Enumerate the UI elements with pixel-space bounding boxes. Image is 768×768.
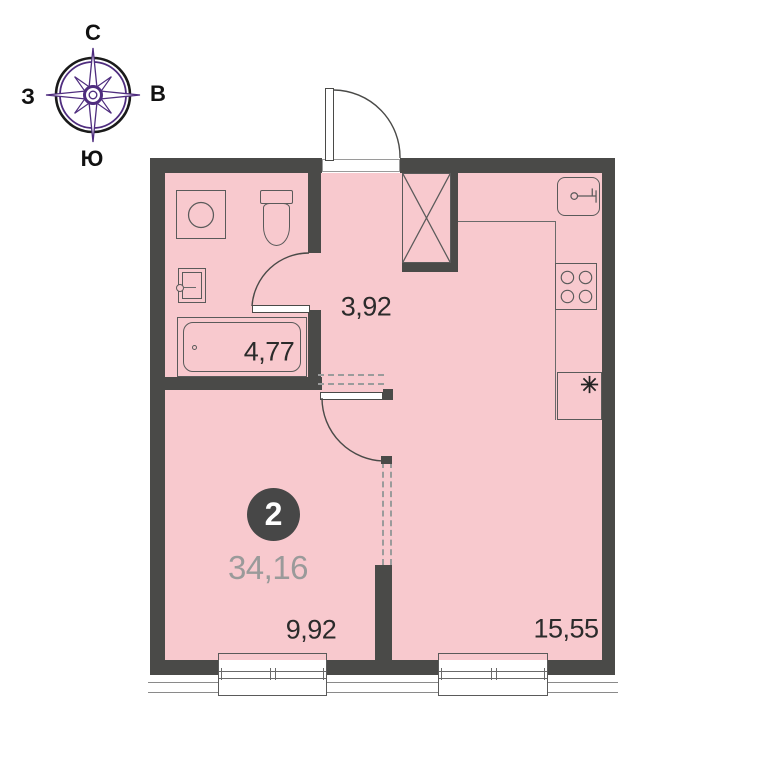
window [218,653,327,696]
washing-machine [176,190,226,239]
window-frame-tick [441,668,442,680]
compass-west-label: З [17,84,39,110]
total-area-label: 34,16 [228,549,308,587]
window-frame-tick [544,668,545,680]
window-frame-tick [491,668,492,680]
kitchen-faucet-icon [558,178,599,215]
toilet-bowl [263,203,290,246]
planned-partition-horizontal [318,374,384,385]
apartment-number: 2 [265,496,283,533]
floor-plan-page: С Ю З В [0,0,768,768]
stove [555,263,597,310]
kitchen-counter-edge [458,221,555,222]
window [438,653,548,696]
window-frame [219,671,326,679]
bathtub-drain-icon [192,345,197,350]
faucet-icon [184,287,196,288]
room-area-label-hallway: 3,92 [341,292,392,323]
planned-partition-vertical [382,462,392,565]
room-area-label-room: 9,92 [286,615,337,646]
shaft-cross-icon [403,174,450,262]
toilet-tank [260,190,293,204]
wall-bathroom-right-upper [308,173,321,253]
window-frame-tick [270,668,271,680]
wall-right [602,158,615,675]
window-frame [439,671,547,679]
wall-left [150,158,165,675]
apartment-number-badge: 2 [247,488,300,541]
faucet-icon [176,284,184,292]
window-frame-tick [323,668,324,680]
interior-door-swing [318,394,390,466]
compass-north-label: С [80,20,106,46]
wall-bathroom-bottom [150,377,322,390]
room-area-label-bathroom: 4,77 [244,337,295,368]
wall-partition-stub [375,565,392,662]
compass-rose-icon [43,45,143,145]
wall-top-left [150,158,322,173]
snowflake-icon [558,373,601,419]
wall-top-right [400,158,615,173]
kitchen-sink [557,177,600,216]
wall-shaft-right [450,173,458,272]
refrigerator [557,372,602,420]
compass-east-label: В [147,81,169,107]
window-frame-tick [221,668,222,680]
compass-south-label: Ю [76,146,108,172]
washer-drum-icon [177,191,225,238]
stove-burners-icon [556,264,596,309]
compass: С Ю З В [15,12,175,177]
window-frame-tick [496,668,497,680]
bathroom-sink-basin [182,272,202,299]
bathroom-door-swing [248,248,318,310]
entrance-door-swing [330,85,406,164]
ventilation-shaft [402,173,451,263]
room-area-label-kitchen-living: 15,55 [533,614,598,645]
window-frame-tick [275,668,276,680]
